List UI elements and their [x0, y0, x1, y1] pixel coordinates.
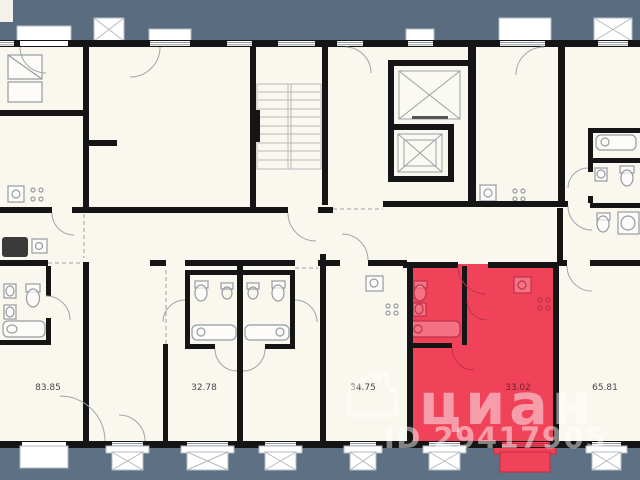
floor-plan-viewport: 83.85 32.78 34.75 33.02 65.81 циан ID 29… [0, 0, 640, 480]
area-label-83-85: 83.85 [35, 383, 61, 393]
watermark: циан ID 29417905 [349, 372, 607, 455]
toilet-icon [272, 285, 284, 301]
toilet-icon [597, 216, 609, 232]
area-label-65-81: 65.81 [592, 383, 618, 393]
bathtub-icon [596, 135, 636, 150]
shower-icon [2, 237, 28, 257]
entrance-porch [20, 446, 68, 468]
area-label-32-78: 32.78 [191, 383, 217, 393]
neighbor-balcony-fragment [0, 0, 13, 22]
apartment-32-78[interactable] [168, 268, 237, 441]
apartment-83-85[interactable] [0, 268, 83, 441]
watermark-listing-id: ID 29417905 [384, 421, 607, 455]
floor-plan-image: 83.85 32.78 34.75 33.02 65.81 циан ID 29… [0, 0, 640, 480]
bathtub-icon [245, 325, 289, 340]
toilet-icon [621, 170, 633, 186]
